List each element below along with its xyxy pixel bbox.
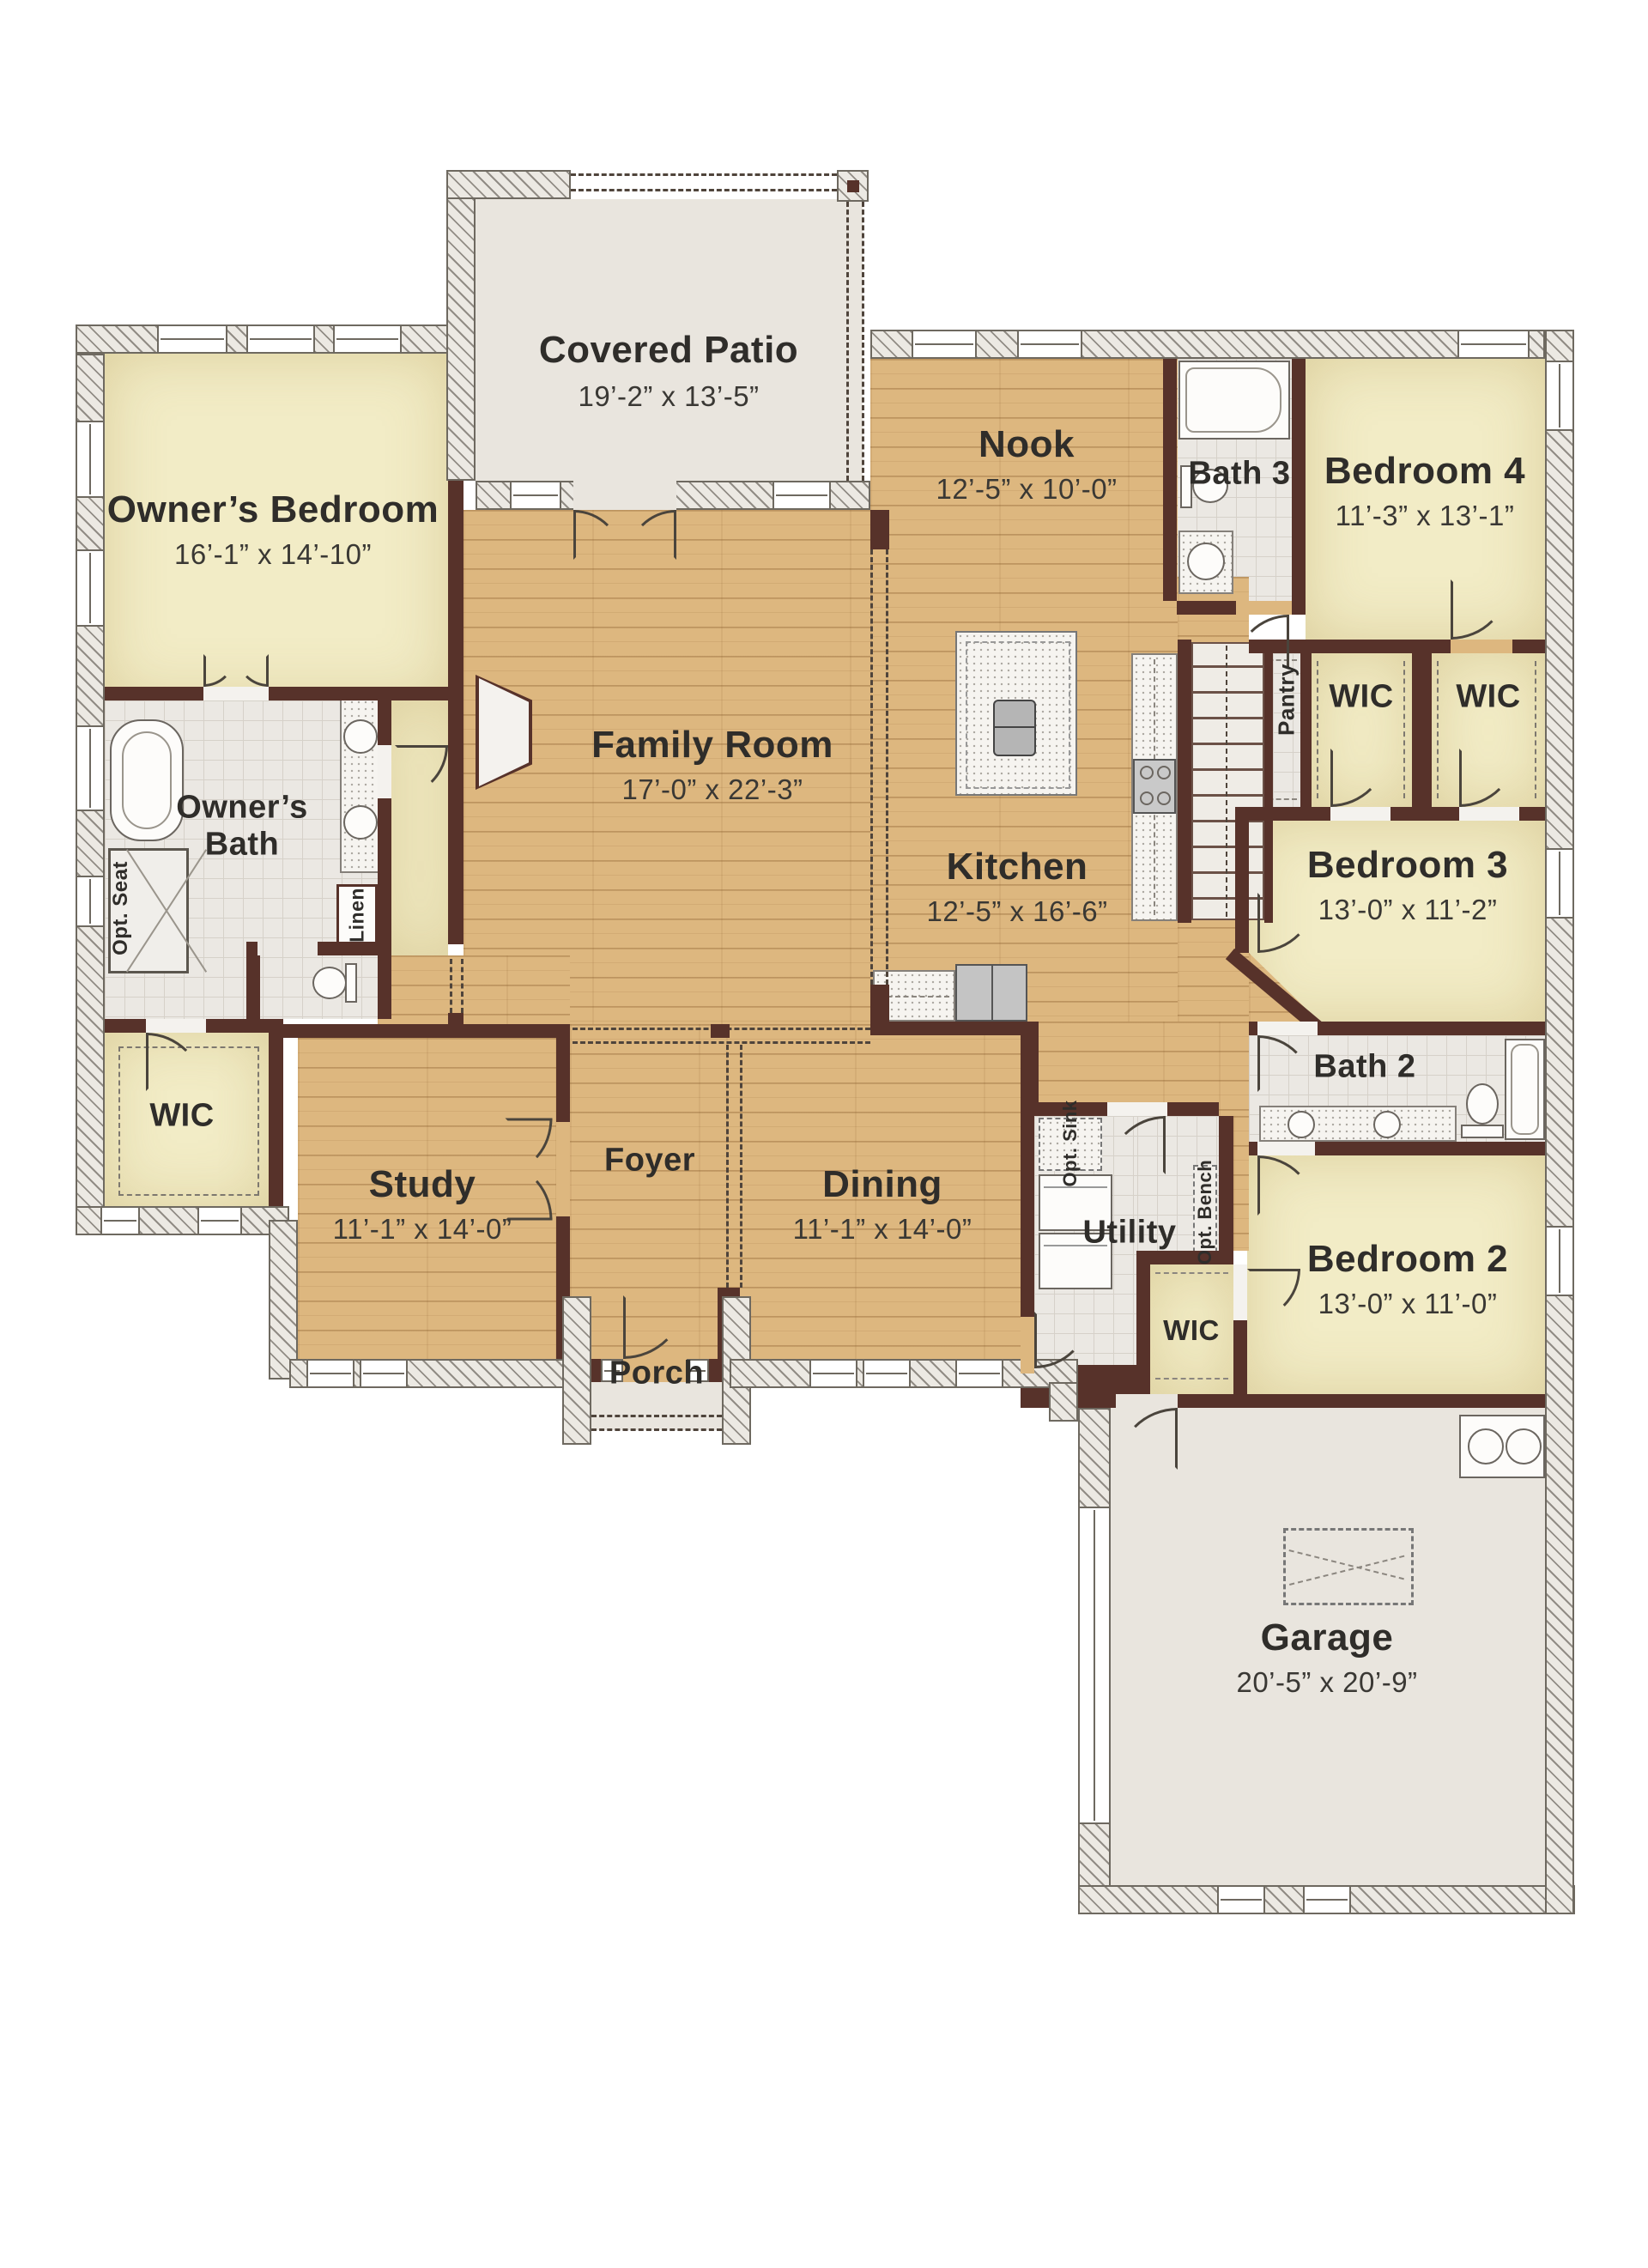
family-foyer-break — [573, 1041, 870, 1044]
patio-open-edge — [846, 202, 849, 481]
window — [1303, 1885, 1351, 1914]
burner — [1157, 791, 1171, 805]
toilet-icon — [1466, 1083, 1499, 1125]
closet-rod — [1437, 661, 1439, 798]
wall — [870, 1022, 1025, 1035]
wall — [448, 481, 463, 944]
sink-icon — [1373, 1111, 1401, 1138]
burner — [1157, 766, 1171, 779]
wall — [105, 687, 203, 700]
sink-icon — [343, 805, 378, 840]
wall — [1318, 1022, 1545, 1035]
closet-rod — [1155, 1272, 1228, 1274]
window — [809, 1359, 857, 1388]
room-dims-covered-patio: 19’-2” x 13’-5” — [578, 380, 759, 413]
wall — [1025, 1022, 1039, 1116]
door-gap — [203, 687, 269, 700]
window — [955, 1359, 1003, 1388]
patio-open-edge — [571, 189, 837, 191]
wall — [318, 942, 378, 955]
wall — [206, 1019, 269, 1033]
fridge-line — [991, 966, 993, 1020]
window — [772, 481, 831, 510]
patio-post-core — [847, 180, 859, 192]
hall-cased-opening — [461, 959, 463, 1013]
window — [333, 324, 402, 354]
sink-divider — [995, 726, 1034, 728]
window — [1217, 1885, 1265, 1914]
window — [157, 324, 227, 354]
room-label-covered-patio: Covered Patio — [539, 329, 798, 372]
counter-centerline — [879, 996, 949, 998]
window — [76, 549, 105, 627]
window — [306, 1359, 354, 1388]
room-label-dining: Dining — [822, 1163, 942, 1206]
closet-rod — [1535, 661, 1536, 798]
wall — [448, 1013, 463, 1024]
fridge-icon — [955, 964, 1027, 1022]
door-gap — [1116, 1394, 1178, 1408]
water-heater-platform — [1459, 1415, 1545, 1478]
label-opt-seat: Opt. Seat — [109, 861, 133, 955]
porch-open-edge — [591, 1415, 722, 1417]
room-label-owners-bath: Owner’s Bath — [156, 789, 328, 862]
sink-icon — [1287, 1111, 1315, 1138]
room-label-foyer: Foyer — [604, 1143, 695, 1179]
room-label-bedroom3: Bedroom 3 — [1307, 844, 1508, 887]
wall — [246, 955, 260, 1019]
hall-lower-floor-2 — [1219, 1022, 1249, 1116]
door-gap — [378, 745, 391, 798]
window — [1545, 848, 1574, 919]
wall — [1178, 640, 1191, 923]
window — [912, 330, 977, 359]
door-gap — [1451, 640, 1512, 653]
room-dims-family-room: 17’-0” x 22’-3” — [621, 773, 803, 806]
burner — [1140, 766, 1154, 779]
window — [1545, 361, 1574, 431]
window — [863, 1359, 911, 1388]
owners-hall-floor — [378, 955, 570, 1024]
wall — [1235, 821, 1249, 953]
window — [360, 1359, 408, 1388]
stairs — [1191, 642, 1264, 920]
wall — [1136, 1251, 1150, 1408]
wall — [1300, 653, 1312, 807]
wall — [1167, 1102, 1219, 1116]
stairs-centerline — [1226, 646, 1227, 917]
bathtub-inner — [1511, 1044, 1539, 1135]
bathtub-inner — [1185, 367, 1281, 433]
hall-lower-floor — [1034, 1022, 1219, 1102]
room-label-wic-bed4-right: WIC — [1456, 679, 1520, 716]
room-label-wic-bed2: WIC — [1163, 1314, 1220, 1347]
window — [76, 876, 105, 927]
window — [246, 324, 315, 354]
floor-plan: Covered Patio 19’-2” x 13’-5” Owner’s Be… — [0, 0, 1648, 2268]
window — [1457, 330, 1530, 359]
door-gap — [1236, 601, 1292, 615]
wall — [1136, 1251, 1233, 1264]
wall — [1519, 807, 1545, 821]
wall — [870, 985, 889, 1022]
room-dims-bedroom4: 11’-3” x 13’-1” — [1336, 500, 1515, 532]
wall — [1249, 1022, 1257, 1035]
room-label-study: Study — [369, 1163, 476, 1206]
foyer-dining-break — [726, 1045, 729, 1288]
window — [76, 421, 105, 498]
label-opt-bench: Opt. Bench — [1194, 1160, 1216, 1264]
room-dims-bedroom3: 13’-0” x 11’-2” — [1318, 894, 1498, 926]
wall — [1235, 807, 1330, 821]
door-gap — [573, 481, 676, 510]
room-label-owners-wic: WIC — [149, 1098, 214, 1135]
wall — [1292, 359, 1306, 615]
window — [1545, 1226, 1574, 1296]
window — [76, 725, 105, 811]
closet-rod — [1317, 661, 1318, 798]
wall — [1233, 1320, 1247, 1408]
toilet-tank — [1461, 1125, 1504, 1138]
wall — [1249, 1142, 1257, 1155]
room-label-bath2: Bath 2 — [1313, 1049, 1415, 1086]
wall — [1177, 601, 1236, 615]
wall — [870, 510, 889, 549]
patio-open-edge — [571, 173, 837, 176]
label-opt-sink: Opt. Sink — [1059, 1100, 1081, 1186]
room-dims-study: 11’-1” x 14’-0” — [333, 1213, 512, 1246]
door-gap — [1330, 807, 1390, 821]
foyer-dining-break — [740, 1045, 742, 1288]
room-label-porch: Porch — [609, 1355, 704, 1392]
exterior-wall — [562, 1296, 591, 1445]
family-kitchen-break — [870, 549, 873, 985]
garage-side-door — [1078, 1507, 1111, 1824]
room-label-bedroom2: Bedroom 2 — [1307, 1238, 1508, 1281]
room-label-utility: Utility — [1082, 1215, 1176, 1252]
vestibule-floor — [391, 700, 448, 955]
door-gap — [1257, 1142, 1315, 1155]
toilet-icon — [312, 967, 347, 999]
room-dims-nook: 12’-5” x 10’-0” — [936, 473, 1117, 506]
room-label-wic-bed4-left: WIC — [1329, 679, 1393, 716]
window — [197, 1206, 242, 1235]
wall — [1412, 653, 1432, 807]
porch-open-edge — [591, 1428, 722, 1431]
wall — [269, 687, 463, 700]
attic-access-icon — [1283, 1528, 1414, 1605]
room-label-bedroom4: Bedroom 4 — [1324, 450, 1525, 493]
door-gap — [1257, 1022, 1318, 1035]
door-gap — [1107, 1102, 1167, 1116]
exterior-wall — [1545, 330, 1574, 1914]
burner — [1140, 791, 1154, 805]
room-label-garage: Garage — [1261, 1616, 1394, 1659]
door-gap — [1459, 807, 1519, 821]
door-gap — [556, 1122, 570, 1216]
wall — [1390, 807, 1459, 821]
closet-rod — [1155, 1378, 1228, 1380]
attic-arrow — [1289, 1549, 1404, 1580]
room-label-pantry: Pantry — [1274, 664, 1300, 736]
room-label-family-room: Family Room — [591, 724, 833, 767]
room-dims-bedroom2: 13’-0” x 11’-0” — [1318, 1288, 1498, 1320]
window — [510, 481, 561, 510]
label-linen: Linen — [346, 888, 369, 943]
window — [100, 1206, 140, 1235]
room-label-bath3: Bath 3 — [1188, 456, 1290, 493]
exterior-wall — [446, 170, 476, 481]
room-dims-kitchen: 12’-5” x 16’-6” — [926, 895, 1107, 928]
hall-cased-opening — [450, 959, 452, 1013]
wall — [1264, 640, 1273, 923]
room-label-owners-bedroom: Owner’s Bedroom — [107, 488, 439, 531]
wall — [556, 1024, 570, 1122]
attic-arrow — [1289, 1555, 1404, 1586]
wall — [1315, 1142, 1545, 1155]
toilet-tank — [345, 963, 357, 1003]
hall-lower-floor-3 — [1233, 1116, 1249, 1251]
closet-rod — [1403, 661, 1405, 798]
exterior-wall — [446, 170, 571, 199]
door-gap — [1021, 1317, 1034, 1374]
wall — [246, 942, 257, 955]
wall — [711, 1024, 730, 1038]
cooktop-icon — [1133, 759, 1176, 814]
wall — [1163, 359, 1177, 601]
sink-icon — [1187, 543, 1225, 580]
door-gap — [1233, 1264, 1247, 1320]
sink-icon — [343, 719, 378, 754]
room-dims-garage: 20’-5” x 20’-9” — [1236, 1666, 1417, 1699]
door-gap — [146, 1019, 206, 1033]
exterior-wall — [269, 1220, 298, 1380]
wall — [1512, 640, 1545, 653]
wall — [269, 1019, 283, 1206]
island-sink-icon — [993, 700, 1036, 756]
patio-open-edge — [862, 202, 864, 481]
room-dims-owners-bedroom: 16’-1” x 14’-10” — [174, 538, 372, 571]
room-label-nook: Nook — [978, 423, 1075, 466]
wall — [1219, 1116, 1233, 1251]
family-kitchen-break — [886, 549, 888, 985]
exterior-wall — [1049, 1382, 1078, 1422]
wall — [105, 1019, 146, 1033]
window — [1017, 330, 1082, 359]
room-label-kitchen: Kitchen — [947, 846, 1088, 888]
room-dims-dining: 11’-1” x 14’-0” — [793, 1213, 972, 1246]
water-heater-icon — [1468, 1428, 1504, 1464]
wall — [269, 1024, 570, 1038]
water-heater-icon — [1506, 1428, 1542, 1464]
